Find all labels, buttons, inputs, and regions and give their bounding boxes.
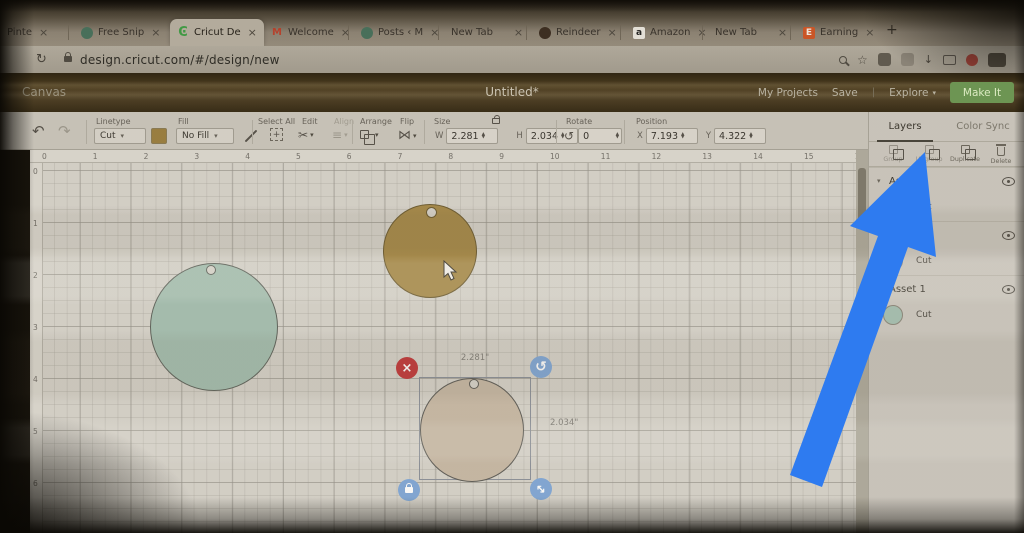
ruler-tick: 5: [296, 152, 301, 161]
header-divider: |: [872, 87, 875, 98]
flip-mirror-icon[interactable]: ⋈: [398, 128, 411, 143]
linetype-label: Linetype: [96, 117, 131, 126]
toolbar-divider: [424, 120, 425, 144]
rotate-handle[interactable]: ↺: [530, 356, 552, 378]
ruler-tick: 1: [93, 152, 98, 161]
selection-height-label: 2.034": [550, 418, 578, 428]
bookmark-star-icon[interactable]: ☆: [857, 53, 868, 67]
resize-handle[interactable]: ↔: [530, 478, 552, 500]
tab-separator: [620, 25, 621, 40]
cricut-app-header: Canvas Untitled* My Projects Save | Expl…: [0, 73, 1024, 112]
height-axis-label: H: [516, 131, 522, 141]
mouse-cursor: [443, 260, 459, 282]
ruler-tick: 1: [33, 219, 38, 228]
tab-cricut-active[interactable]: Ͼ Cricut De ×: [170, 19, 264, 46]
ruler-tick: 2: [33, 271, 38, 280]
ruler-tick: 6: [33, 479, 38, 488]
stepper-icon[interactable]: ▲▼: [749, 133, 752, 140]
tag-hole: [206, 265, 216, 275]
tab-free-snip[interactable]: Free Snip ×: [74, 19, 167, 46]
download-icon[interactable]: ↓: [924, 53, 933, 66]
chevron-down-icon: ▾: [214, 132, 218, 140]
select-all-label: Select All: [258, 117, 295, 126]
rotate-icon[interactable]: ↺: [564, 129, 574, 143]
align-icon[interactable]: ≡: [332, 128, 342, 142]
ruler-tick: 10: [550, 152, 560, 161]
explore-dropdown[interactable]: Explore ▾: [889, 87, 936, 99]
reload-icon[interactable]: ↻: [36, 52, 47, 67]
tab-close-icon[interactable]: ×: [514, 26, 523, 39]
layer-group-header[interactable]: ▾ Asset: [869, 167, 1024, 194]
tab-gmail-welcome[interactable]: M Welcome ×: [264, 19, 357, 46]
browser-action-icons: ☆ ↓: [839, 46, 1006, 73]
ruler-top: 012345678910111213141516: [30, 150, 868, 163]
chevron-down-icon: ▾: [121, 132, 125, 140]
ruler-tick: 4: [33, 375, 38, 384]
width-axis-label: W: [435, 131, 443, 141]
resize-arrow-icon: ↔: [532, 480, 549, 497]
layer-row[interactable]: Cut: [869, 194, 1024, 221]
design-canvas[interactable]: 012345678910111213141516 0123456 2.281" …: [30, 150, 868, 533]
ruler-left: 0123456: [30, 163, 43, 533]
extension-icon[interactable]: [878, 53, 891, 66]
layer-thumbnail: [883, 197, 903, 217]
browser-tab-strip: Pinte × Free Snip × Ͼ Cricut De × M Welc…: [0, 0, 1024, 46]
layers-panel: Layers Color Sync Group Ungroup Duplicat…: [868, 112, 1024, 533]
extension-icon[interactable]: [901, 53, 914, 66]
amazon-icon: a: [633, 27, 645, 39]
tag-hole: [426, 207, 437, 218]
extension-window-icon[interactable]: [943, 55, 956, 65]
toolbar-divider: [252, 120, 253, 144]
selection-width-label: 2.281": [450, 353, 500, 363]
tab-separator: [68, 25, 69, 40]
cricut-logo-icon: Ͼ: [177, 27, 189, 39]
chevron-down-icon: ▾: [413, 132, 417, 140]
vertical-scrollbar[interactable]: [856, 150, 868, 533]
tab-color-sync[interactable]: Color Sync: [941, 112, 1024, 142]
tab-new-tab-1[interactable]: New Tab ×: [444, 19, 530, 46]
adblock-icon[interactable]: [966, 54, 978, 66]
layer-group-header[interactable]: ▾ Asset: [869, 221, 1024, 248]
group-button[interactable]: Group: [875, 145, 911, 163]
ruler-tick: 2: [144, 152, 149, 161]
save-link[interactable]: Save: [832, 87, 858, 99]
rotate-label: Rotate: [566, 117, 592, 126]
ruler-tick: 0: [33, 167, 38, 176]
tab-separator: [526, 25, 527, 40]
browser-address-bar: ↻ design.cricut.com/#/design/new ☆ ↓: [0, 46, 1024, 73]
tab-etsy-earning[interactable]: E Earning ×: [796, 19, 881, 46]
rotate-icon: ↺: [535, 359, 547, 375]
toolbar-divider: [556, 120, 557, 144]
ruler-tick: 7: [398, 152, 403, 161]
canvas-page-label: Canvas: [22, 85, 66, 99]
gold-circle-shape[interactable]: [383, 204, 477, 298]
duplicate-icon: [961, 145, 970, 154]
teal-circle-shape[interactable]: [150, 263, 278, 391]
position-y-input[interactable]: 4.322 ▲▼: [714, 128, 766, 144]
tab-close-icon[interactable]: ×: [248, 26, 257, 39]
expand-triangle-icon[interactable]: ▾: [877, 285, 881, 293]
stepper-icon[interactable]: ▲▼: [482, 133, 485, 140]
edit-label: Edit: [302, 117, 318, 126]
visibility-eye-icon[interactable]: [1002, 177, 1015, 186]
visibility-eye-icon[interactable]: [1002, 231, 1015, 240]
layer-row[interactable]: Cut: [869, 248, 1024, 275]
duplicate-button[interactable]: Duplicate: [947, 145, 983, 163]
photographed-monitor: Pinte × Free Snip × Ͼ Cricut De × M Welc…: [0, 0, 1024, 533]
tab-close-icon[interactable]: ×: [151, 26, 160, 39]
trash-icon: [997, 147, 1005, 156]
arrange-layers-icon[interactable]: [360, 130, 369, 139]
select-all-icon[interactable]: [270, 128, 283, 141]
chevron-down-icon: ▾: [375, 131, 379, 139]
redo-icon[interactable]: ↷: [58, 122, 71, 140]
tab-close-icon[interactable]: ×: [608, 26, 617, 39]
ungroup-icon: [925, 145, 934, 154]
tab-new-tab-2[interactable]: New Tab ×: [708, 19, 794, 46]
fill-label: Fill: [178, 117, 189, 126]
width-input[interactable]: 2.281 ▲▼: [446, 128, 498, 144]
tab-label: Pinte: [7, 27, 32, 38]
layer-group-header[interactable]: ▾ Asset 1: [869, 275, 1024, 302]
flip-label: Flip: [400, 117, 414, 126]
size-label: Size: [434, 117, 450, 126]
tan-circle-shape-selected[interactable]: [420, 378, 524, 482]
ruler-tick: 8: [448, 152, 453, 161]
ruler-tick: 13: [702, 152, 712, 161]
gmail-icon: M: [271, 27, 283, 39]
delete-button[interactable]: Delete: [983, 145, 1019, 165]
ungroup-button[interactable]: Ungroup: [911, 145, 947, 163]
pen-slash-icon: [245, 130, 258, 143]
ruler-tick: 6: [347, 152, 352, 161]
tab-close-icon[interactable]: ×: [778, 26, 787, 39]
globe-icon: [361, 27, 373, 39]
lock-aspect-handle[interactable]: [398, 479, 420, 501]
toolbar-divider: [624, 120, 625, 144]
layer-row[interactable]: Cut: [869, 302, 1024, 329]
delete-handle[interactable]: ×: [396, 357, 418, 379]
tag-hole: [469, 379, 479, 389]
ruler-tick: 12: [652, 152, 662, 161]
zoom-search-icon[interactable]: [839, 56, 847, 64]
https-lock-icon: [64, 56, 72, 62]
scrollbar-thumb[interactable]: [858, 168, 866, 226]
aspect-lock-icon[interactable]: [492, 118, 500, 124]
lock-icon: [405, 487, 413, 493]
layer-actions: Group Ungroup Duplicate Delete: [869, 142, 1024, 167]
stepper-icon[interactable]: ▲▼: [616, 133, 619, 140]
tab-separator: [790, 25, 791, 40]
tab-separator: [438, 25, 439, 40]
ruler-tick: 0: [42, 152, 47, 161]
visibility-eye-icon[interactable]: [1002, 285, 1015, 294]
my-projects-link[interactable]: My Projects: [758, 87, 818, 99]
ruler-tick: 3: [194, 152, 199, 161]
ruler-tick: 11: [601, 152, 611, 161]
new-tab-button[interactable]: +: [886, 22, 898, 38]
tab-posts[interactable]: Posts ‹ M ×: [354, 19, 446, 46]
make-it-button[interactable]: Make It: [950, 82, 1014, 103]
rotate-input[interactable]: 0 ▲▼: [578, 128, 622, 144]
toolbar-divider: [86, 120, 87, 144]
stepper-icon[interactable]: ▲▼: [681, 133, 684, 140]
position-label: Position: [636, 117, 667, 126]
browser-menu-icon[interactable]: [988, 53, 1006, 67]
etsy-icon: E: [803, 27, 815, 39]
arrange-label: Arrange: [360, 117, 392, 126]
ruler-tick: 14: [753, 152, 763, 161]
tab-close-icon[interactable]: ×: [865, 26, 874, 39]
tab-layers[interactable]: Layers: [869, 112, 941, 142]
chevron-down-icon: ▾: [344, 131, 348, 139]
group-icon: [889, 145, 898, 154]
globe-icon: [81, 27, 93, 39]
panel-tabs: Layers Color Sync: [869, 112, 1024, 142]
tab-amazon[interactable]: a Amazon ×: [626, 19, 714, 46]
layer-thumbnail: [883, 251, 903, 271]
linetype-select[interactable]: Cut ▾: [94, 128, 146, 144]
ruler-tick: 5: [33, 427, 38, 436]
site-favicon-icon: [539, 27, 551, 39]
chevron-down-icon: ▾: [932, 89, 936, 97]
y-axis-label: Y: [706, 131, 711, 141]
ruler-tick: 15: [804, 152, 814, 161]
position-x-input[interactable]: 7.193 ▲▼: [646, 128, 698, 144]
layers-list: ▾ Asset Cut ▾ Asset Cut ▾ Asset 1: [869, 167, 1024, 533]
edit-toolbar: ↶ ↷ Linetype Cut ▾ Fill No Fill ▾ Select…: [0, 112, 868, 150]
layer-thumbnail: [883, 305, 903, 325]
tab-separator: [348, 25, 349, 40]
edit-scissors-icon[interactable]: ✂: [298, 128, 308, 142]
ruler-tick: 9: [499, 152, 504, 161]
x-axis-label: X: [637, 131, 643, 141]
tab-close-icon[interactable]: ×: [39, 26, 48, 39]
expand-triangle-icon[interactable]: ▾: [877, 231, 881, 239]
ruler-tick: 3: [33, 323, 38, 332]
tab-separator: [702, 25, 703, 40]
tab-reindeer[interactable]: Reindeer ×: [532, 19, 624, 46]
toolbar-divider: [352, 120, 353, 144]
linetype-color-swatch[interactable]: [151, 128, 167, 144]
fill-select[interactable]: No Fill ▾: [176, 128, 234, 144]
url-text[interactable]: design.cricut.com/#/design/new: [80, 53, 280, 67]
tab-pinterest[interactable]: Pinte ×: [0, 19, 55, 46]
chevron-down-icon: ▾: [310, 131, 314, 139]
ruler-tick: 4: [245, 152, 250, 161]
expand-triangle-icon[interactable]: ▾: [877, 177, 881, 185]
undo-icon[interactable]: ↶: [32, 122, 45, 140]
